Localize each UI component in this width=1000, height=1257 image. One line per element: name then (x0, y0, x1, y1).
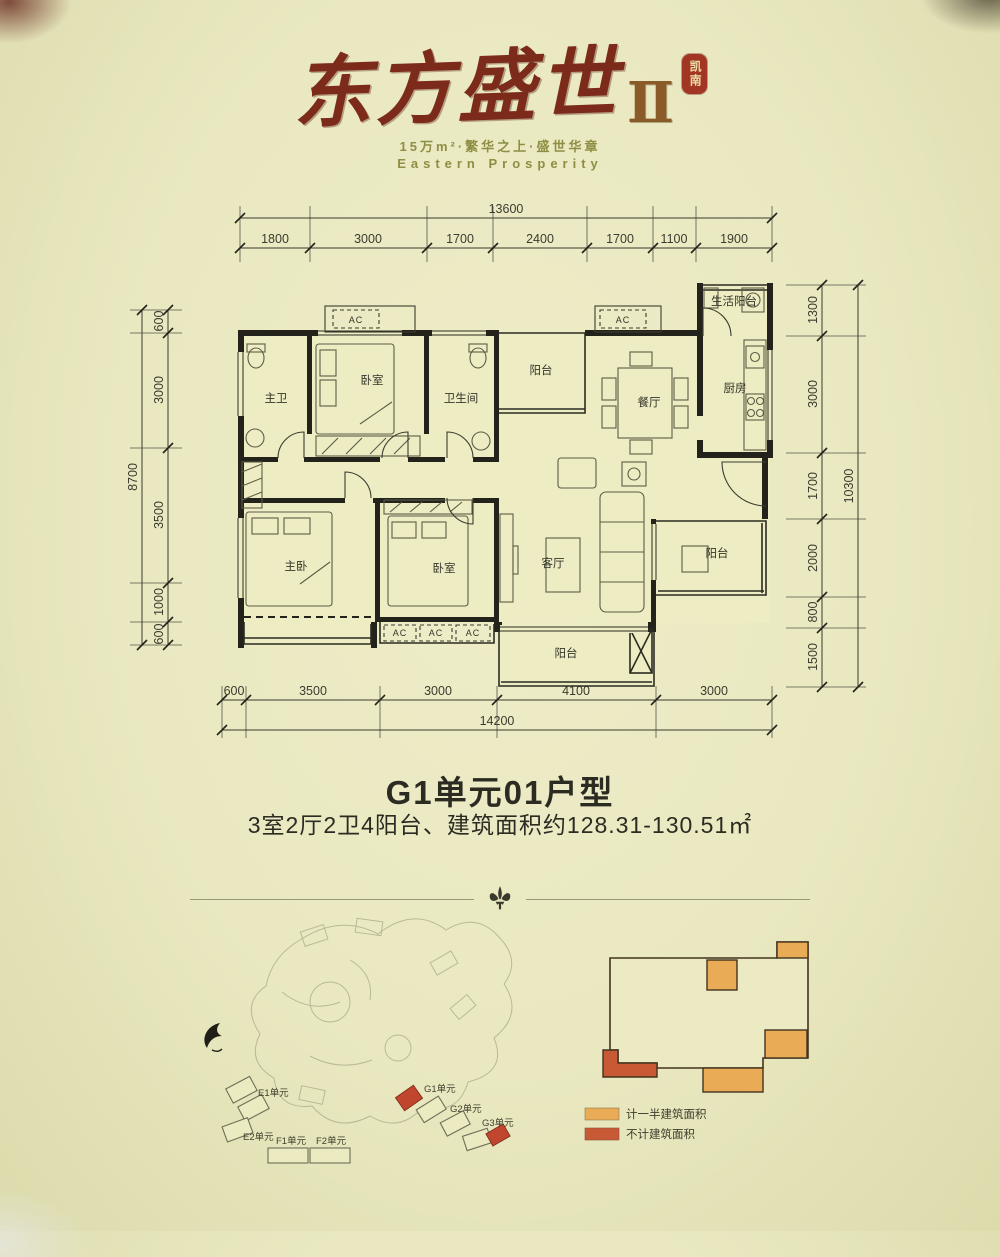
brand-seal: 凯南 (682, 54, 707, 94)
dim-right-6: 1500 (806, 643, 820, 671)
site-label-e2: E2单元 (243, 1131, 274, 1143)
room-label-bathroom: 卫生间 (444, 391, 479, 405)
dim-bottom-3: 3000 (424, 684, 452, 698)
photo-artifact-bottom-left (0, 1187, 90, 1257)
site-map: E1单元 E2单元 F1单元 F2单元 G1单元 G2单元 G3单元 (170, 900, 550, 1200)
dim-left-4: 1000 (152, 588, 166, 616)
dim-top-6: 1100 (661, 232, 688, 246)
key-plan-legend: 计一半建筑面积 不计建筑面积 (585, 1107, 707, 1141)
legend-swatch-half (585, 1108, 619, 1120)
room-label-balcony-top: 阳台 (530, 363, 553, 377)
site-label-g2: G2单元 (450, 1103, 482, 1115)
room-label-living: 客厅 (542, 556, 565, 570)
dim-bottom-5: 3000 (700, 684, 728, 698)
room-label-master-bedroom: 主卧 (285, 560, 308, 573)
site-label-g3: G3单元 (482, 1117, 514, 1129)
floor-plan: 13600 1800 3000 1700 2400 1700 1100 1900… (110, 196, 910, 762)
ac-label-strip-3: AC (466, 628, 481, 638)
dim-top-5: 1700 (606, 232, 634, 246)
legend-swatch-excluded (585, 1128, 619, 1140)
compass-icon (204, 1023, 222, 1051)
ac-label-strip-1: AC (393, 628, 408, 638)
legend-label-half: 计一半建筑面积 (626, 1107, 707, 1121)
dim-left-total: 8700 (126, 463, 140, 491)
dim-right-5: 800 (806, 602, 820, 623)
logo-calligraphy: 东方盛世 (292, 44, 623, 133)
brand-tagline-cn: 15万m²·繁华之上·盛世华章 (0, 136, 1000, 155)
dim-left-5: 600 (152, 624, 166, 645)
ac-label-dining: AC (616, 315, 631, 325)
site-map-sketch (251, 918, 512, 1123)
dim-top-2: 3000 (354, 232, 382, 246)
dim-right-total: 10300 (842, 469, 856, 504)
room-label-master-bath: 主卫 (265, 392, 288, 405)
brand-header: 东方盛世 Ⅱ 凯南 15万m²·繁华之上·盛世华章 Eastern Prospe… (0, 50, 1000, 171)
dim-bottom-2: 3500 (299, 684, 327, 698)
room-label-balcony-bottom: 阳台 (555, 646, 578, 660)
room-label-dining: 餐厅 (638, 395, 661, 409)
divider-line-right (526, 899, 810, 900)
photo-artifact-top-left (0, 0, 72, 44)
dim-left-3: 3500 (152, 501, 166, 529)
dim-right-2: 3000 (806, 380, 820, 408)
ac-label-strip-2: AC (429, 628, 444, 638)
room-label-bedroom2: 卧室 (433, 561, 456, 575)
unit-subtitle: 3室2厅2卫4阳台、建筑面积约128.31-130.51㎡ (0, 806, 1000, 840)
dim-top-7: 1900 (720, 232, 748, 246)
dim-right-1: 1300 (806, 296, 820, 324)
dim-right-4: 2000 (806, 544, 820, 572)
dim-left-2: 3000 (152, 376, 166, 404)
brand-tagline-en: Eastern Prosperity (0, 156, 1000, 171)
dim-left-1: 600 (152, 311, 166, 332)
room-label-service-balcony: 生活阳台 (711, 294, 757, 308)
logo-numeral: Ⅱ (627, 78, 674, 128)
site-label-e1: E1单元 (258, 1087, 289, 1099)
logo-row: 东方盛世 Ⅱ 凯南 (293, 50, 707, 128)
ac-label-bedroom: AC (349, 315, 364, 325)
dim-right-3: 1700 (806, 472, 820, 500)
legend-label-excluded: 不计建筑面积 (626, 1127, 695, 1141)
dim-top-1: 1800 (261, 232, 289, 246)
dim-top-4: 2400 (526, 232, 554, 246)
dim-top-3: 1700 (446, 232, 474, 246)
room-label-kitchen: 厨房 (724, 382, 747, 395)
site-label-f1: F1单元 (276, 1135, 307, 1147)
dim-top-total: 13600 (489, 202, 524, 216)
site-label-f2: F2单元 (316, 1135, 347, 1147)
room-label-bedroom-top: 卧室 (361, 373, 384, 387)
dim-bottom-1: 600 (224, 684, 245, 698)
room-label-balcony-right: 阳台 (706, 546, 729, 560)
unit-key-plan: 计一半建筑面积 不计建筑面积 (570, 922, 890, 1174)
site-label-g1: G1单元 (424, 1083, 456, 1095)
dim-bottom-total: 14200 (480, 714, 515, 728)
photo-artifact-top-right (920, 0, 1000, 34)
